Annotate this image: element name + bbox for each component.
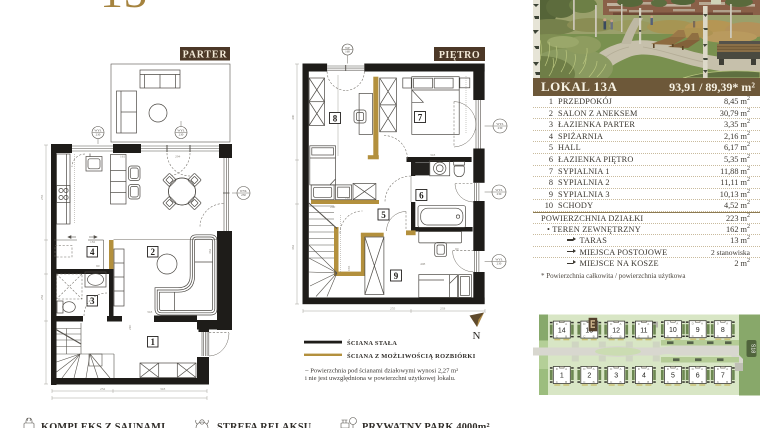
svg-text:7: 7 bbox=[721, 373, 725, 380]
svg-text:230: 230 bbox=[498, 126, 503, 130]
svg-text:400: 400 bbox=[291, 115, 295, 121]
svg-text:230: 230 bbox=[179, 133, 184, 137]
svg-text:ŚCIANA STAŁA: ŚCIANA STAŁA bbox=[347, 339, 397, 347]
svg-text:S18: S18 bbox=[750, 344, 756, 353]
svg-text:PIĘTRO: PIĘTRO bbox=[439, 50, 480, 61]
svg-text:165: 165 bbox=[347, 266, 351, 272]
svg-text:240: 240 bbox=[330, 205, 336, 209]
svg-text:7: 7 bbox=[418, 112, 423, 122]
svg-text:255: 255 bbox=[40, 195, 44, 201]
svg-text:KOMPLEKS Z SAUNAMI: KOMPLEKS Z SAUNAMI bbox=[41, 422, 165, 428]
svg-text:230: 230 bbox=[497, 262, 502, 266]
svg-text:8: 8 bbox=[333, 113, 338, 123]
svg-text:i nie jest uwzględniona w powi: i nie jest uwzględniona w powierzchni uż… bbox=[305, 375, 456, 382]
svg-text:1: 1 bbox=[151, 337, 156, 347]
svg-text:230: 230 bbox=[96, 133, 101, 137]
svg-text:8: 8 bbox=[721, 327, 725, 334]
svg-text:318: 318 bbox=[147, 310, 153, 314]
svg-text:90: 90 bbox=[96, 264, 100, 268]
svg-text:6: 6 bbox=[696, 373, 700, 380]
svg-text:2: 2 bbox=[151, 247, 156, 257]
svg-text:252: 252 bbox=[100, 387, 106, 391]
svg-text:PARTER: PARTER bbox=[183, 50, 228, 61]
svg-text:230: 230 bbox=[241, 193, 246, 197]
svg-text:~ Powierzchnia pod ścianami dz: ~ Powierzchnia pod ścianami działowymi w… bbox=[305, 367, 458, 374]
svg-text:210: 210 bbox=[128, 325, 132, 331]
svg-text:118: 118 bbox=[345, 196, 350, 200]
svg-text:9: 9 bbox=[394, 271, 399, 281]
svg-text:5: 5 bbox=[381, 210, 386, 220]
svg-text:318: 318 bbox=[160, 387, 166, 391]
svg-text:10: 10 bbox=[669, 327, 677, 334]
svg-text:318: 318 bbox=[430, 153, 436, 157]
svg-text:294: 294 bbox=[175, 155, 181, 159]
svg-text:4: 4 bbox=[90, 247, 95, 257]
svg-text:4: 4 bbox=[642, 373, 646, 380]
svg-text:90: 90 bbox=[455, 247, 459, 251]
svg-text:182: 182 bbox=[90, 240, 96, 244]
svg-text:255: 255 bbox=[390, 307, 396, 311]
svg-text:160: 160 bbox=[345, 50, 350, 54]
svg-text:362: 362 bbox=[208, 249, 212, 255]
svg-text:3: 3 bbox=[90, 296, 95, 306]
svg-text:N: N bbox=[473, 330, 481, 342]
svg-text:11: 11 bbox=[640, 327, 647, 334]
svg-text:14: 14 bbox=[558, 327, 566, 334]
svg-text:230: 230 bbox=[497, 192, 502, 196]
svg-text:12: 12 bbox=[612, 327, 620, 334]
svg-text:5: 5 bbox=[671, 373, 675, 380]
svg-text:161: 161 bbox=[120, 155, 126, 159]
svg-text:1: 1 bbox=[560, 373, 564, 380]
svg-text:ŚCIANA Z MOŻLIWOŚCIĄ ROZBIÓRKI: ŚCIANA Z MOŻLIWOŚCIĄ ROZBIÓRKI bbox=[347, 352, 476, 360]
svg-text:STREFA RELAKSU: STREFA RELAKSU bbox=[217, 422, 312, 428]
svg-text:408: 408 bbox=[420, 262, 426, 266]
svg-text:2: 2 bbox=[587, 373, 591, 380]
svg-text:233: 233 bbox=[440, 307, 446, 311]
svg-text:362: 362 bbox=[291, 245, 295, 251]
svg-text:PRYWATNY PARK 4000m²: PRYWATNY PARK 4000m² bbox=[362, 422, 490, 428]
svg-text:9: 9 bbox=[696, 327, 700, 334]
svg-text:3: 3 bbox=[614, 373, 618, 380]
svg-text:6: 6 bbox=[419, 190, 424, 200]
svg-text:282: 282 bbox=[40, 295, 44, 301]
